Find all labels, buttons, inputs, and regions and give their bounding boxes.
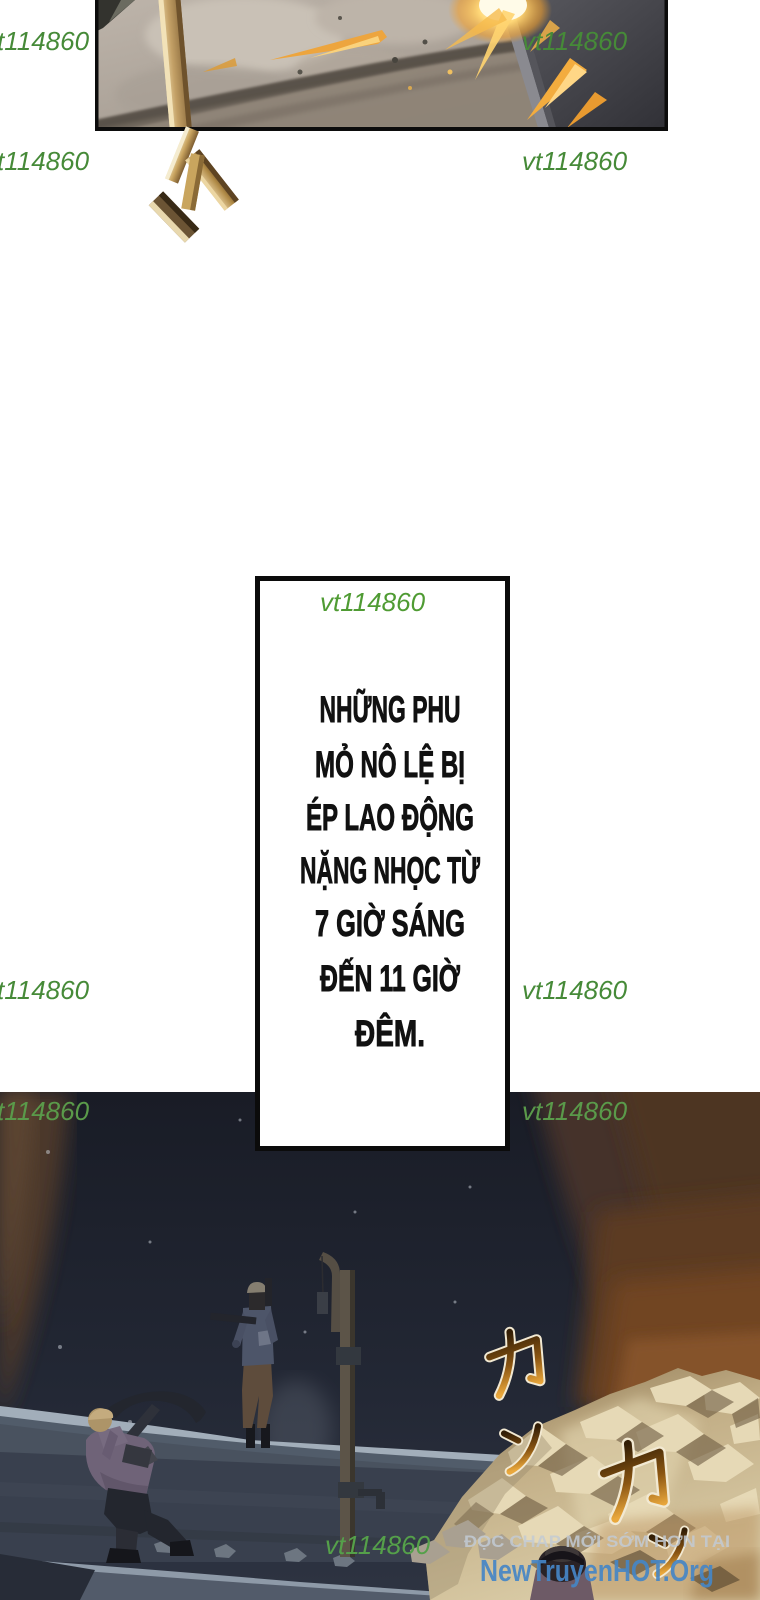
svg-text:vt114860: vt114860 — [0, 146, 90, 176]
svg-text:vt114860: vt114860 — [320, 587, 426, 617]
svg-text:vt114860: vt114860 — [522, 146, 628, 176]
svg-text:vt114860: vt114860 — [522, 1096, 628, 1126]
svg-text:vt114860: vt114860 — [0, 26, 90, 56]
svg-text:vt114860: vt114860 — [0, 1096, 90, 1126]
svg-text:vt114860: vt114860 — [522, 26, 628, 56]
svg-text:vt114860: vt114860 — [325, 1530, 431, 1560]
svg-text:vt114860: vt114860 — [0, 975, 90, 1005]
svg-text:vt114860: vt114860 — [522, 975, 628, 1005]
